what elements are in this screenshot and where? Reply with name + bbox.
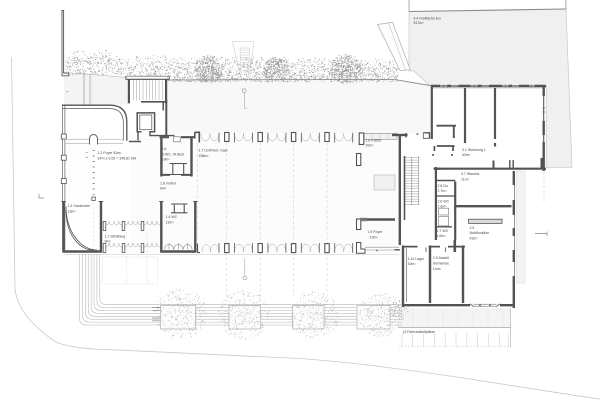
svg-text:9m²: 9m² (105, 240, 112, 244)
svg-text:2.8 Du: 2.8 Du (438, 184, 448, 188)
svg-text:10m²: 10m² (408, 262, 417, 266)
svg-text:517m²: 517m² (414, 21, 425, 25)
svg-text:1.6m²: 1.6m² (437, 234, 447, 238)
svg-text:3.7 Waschk.: 3.7 Waschk. (461, 172, 480, 176)
svg-text:12m²: 12m² (166, 220, 175, 224)
svg-text:11m²: 11m² (461, 178, 470, 182)
svg-text:9m²: 9m² (160, 187, 167, 191)
svg-text:63m²: 63m² (462, 153, 471, 157)
svg-text:158m²: 158m² (199, 154, 210, 158)
svg-text:1.9 Foyer: 1.9 Foyer (368, 230, 384, 234)
svg-text:1.1 Windfang: 1.1 Windfang (105, 234, 126, 238)
svg-text:2.5: 2.5 (470, 226, 475, 230)
svg-text:2.7 WC: 2.7 WC (437, 229, 449, 233)
svg-text:13m²: 13m² (68, 209, 77, 213)
svg-text:2.7m²: 2.7m² (438, 189, 448, 193)
svg-text:· 10m²: · 10m² (368, 236, 379, 240)
svg-text:Multifunktion: Multifunktion (470, 231, 490, 235)
svg-text:1.10 Lager: 1.10 Lager (408, 257, 426, 261)
svg-text:EFH ± 0,00 = 345,81 NN: EFH ± 0,00 = 345,81 NN (98, 157, 137, 161)
svg-text:(3 Fahrradstellplätze: (3 Fahrradstellplätze (403, 330, 435, 334)
svg-text:2.9 Abstell: 2.9 Abstell (433, 256, 449, 260)
svg-text:1.4 WC: 1.4 WC (166, 215, 178, 219)
svg-text:1.6 Küche: 1.6 Küche (366, 138, 382, 142)
svg-text:Gemeinde: Gemeinde (433, 262, 449, 266)
svg-text:3.1 Wohnung 1: 3.1 Wohnung 1 (462, 148, 486, 152)
svg-text:1.3 Garderobe: 1.3 Garderobe (68, 204, 91, 208)
svg-text:1.2 Foyer 51m²: 1.2 Foyer 51m² (98, 151, 123, 155)
svg-text:19m²: 19m² (162, 158, 171, 162)
svg-text:14m²: 14m² (433, 267, 442, 271)
svg-text:B-WC, W.tisch: B-WC, W.tisch (162, 152, 185, 156)
svg-text:1.7 Dorf/Vert.-Saal: 1.7 Dorf/Vert.-Saal (199, 149, 228, 153)
svg-text:4.4 Freifläche EG: 4.4 Freifläche EG (414, 16, 442, 20)
svg-text:42m²: 42m² (470, 236, 479, 240)
svg-text:20m²: 20m² (366, 144, 375, 148)
svg-text:1.6: 1.6 (162, 147, 167, 151)
svg-text:1.8 Vorflur: 1.8 Vorflur (160, 181, 177, 185)
svg-text:2.6 WC: 2.6 WC (438, 199, 450, 203)
